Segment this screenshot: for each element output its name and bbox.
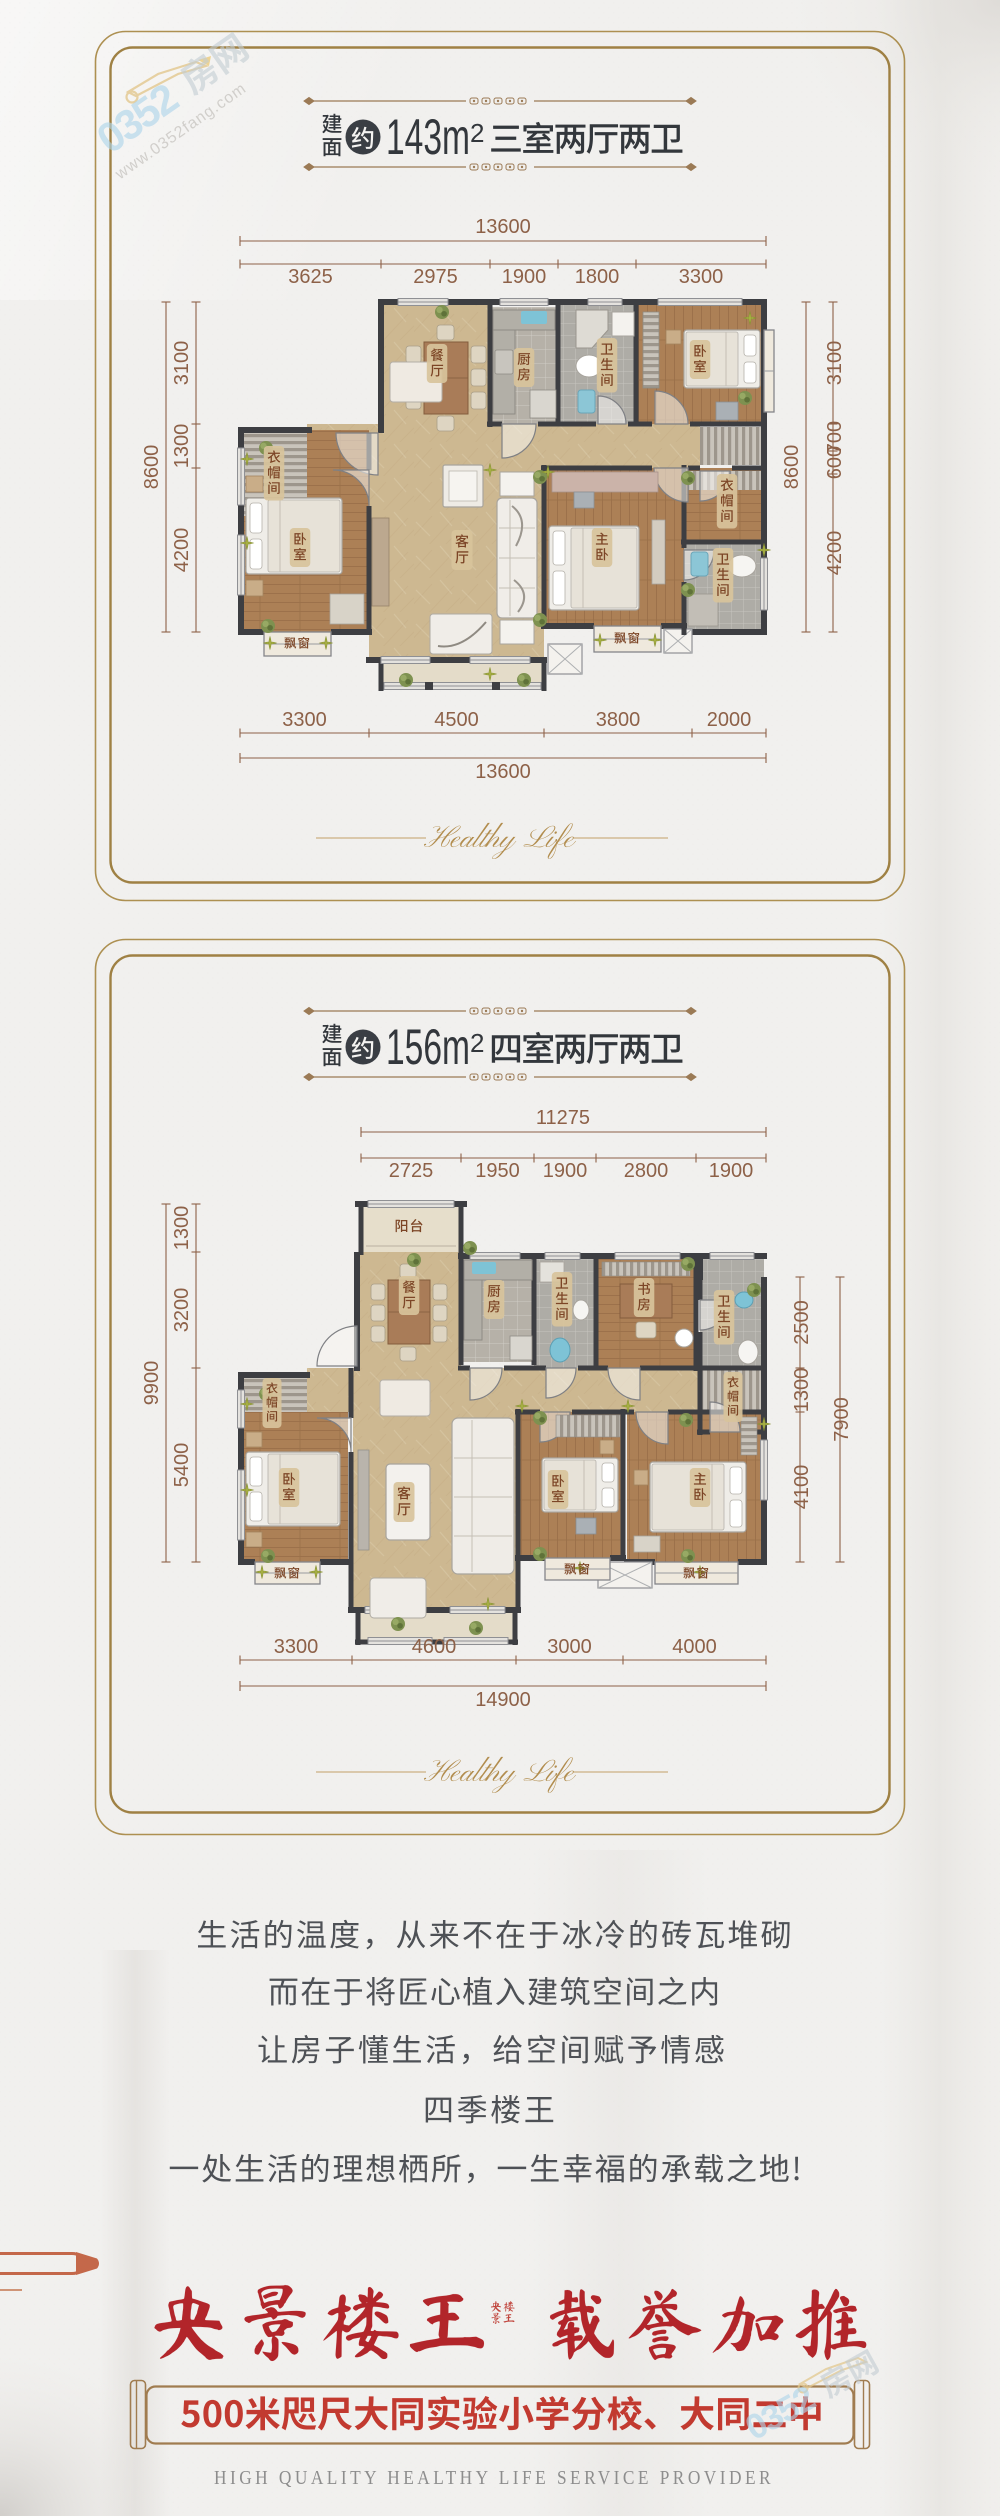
- svg-text:13600: 13600: [475, 216, 531, 238]
- svg-text:4500: 4500: [434, 709, 479, 731]
- svg-text:1300: 1300: [171, 424, 193, 469]
- svg-text:1300: 1300: [791, 1368, 813, 1413]
- svg-text:7900: 7900: [831, 1397, 853, 1442]
- svg-text:HIGH QUALITY HEALTHY LIFE SERV: HIGH QUALITY HEALTHY LIFE SERVICE PROVID…: [214, 2467, 774, 2489]
- svg-text:600: 600: [824, 446, 846, 479]
- svg-text:143m: 143m: [386, 109, 470, 165]
- svg-text:2725: 2725: [389, 1160, 434, 1182]
- svg-text:4000: 4000: [672, 1636, 717, 1658]
- svg-text:156m: 156m: [386, 1019, 470, 1075]
- svg-text:2500: 2500: [791, 1300, 813, 1345]
- svg-text:3200: 3200: [171, 1288, 193, 1333]
- svg-text:3100: 3100: [171, 341, 193, 386]
- svg-text:14900: 14900: [475, 1689, 531, 1711]
- svg-text:3625: 3625: [288, 266, 333, 288]
- svg-text:8600: 8600: [781, 445, 803, 490]
- svg-text:4200: 4200: [824, 531, 846, 576]
- svg-text:1950: 1950: [475, 1160, 520, 1182]
- svg-text:4100: 4100: [791, 1465, 813, 1510]
- svg-text:4200: 4200: [171, 528, 193, 573]
- svg-text:3800: 3800: [596, 709, 641, 731]
- svg-text:1900: 1900: [543, 1160, 588, 1182]
- svg-text:11275: 11275: [536, 1107, 590, 1129]
- svg-text:13600: 13600: [475, 761, 531, 783]
- svg-text:2975: 2975: [413, 266, 458, 288]
- svg-text:3300: 3300: [679, 266, 724, 288]
- svg-text:8600: 8600: [141, 445, 163, 490]
- svg-text:3300: 3300: [282, 709, 327, 731]
- svg-text:3000: 3000: [547, 1636, 592, 1658]
- svg-text:1900: 1900: [502, 266, 547, 288]
- svg-text:2: 2: [470, 1028, 484, 1058]
- svg-text:2000: 2000: [707, 709, 752, 731]
- svg-text:1800: 1800: [575, 266, 620, 288]
- svg-text:1300: 1300: [171, 1206, 193, 1251]
- svg-text:9900: 9900: [141, 1361, 163, 1406]
- svg-text:3100: 3100: [824, 341, 846, 386]
- svg-text:5400: 5400: [171, 1443, 193, 1488]
- svg-text:1900: 1900: [709, 1160, 754, 1182]
- svg-text:4600: 4600: [412, 1636, 457, 1658]
- svg-text:2: 2: [470, 118, 484, 148]
- svg-text:3300: 3300: [274, 1636, 319, 1658]
- svg-text:2800: 2800: [624, 1160, 669, 1182]
